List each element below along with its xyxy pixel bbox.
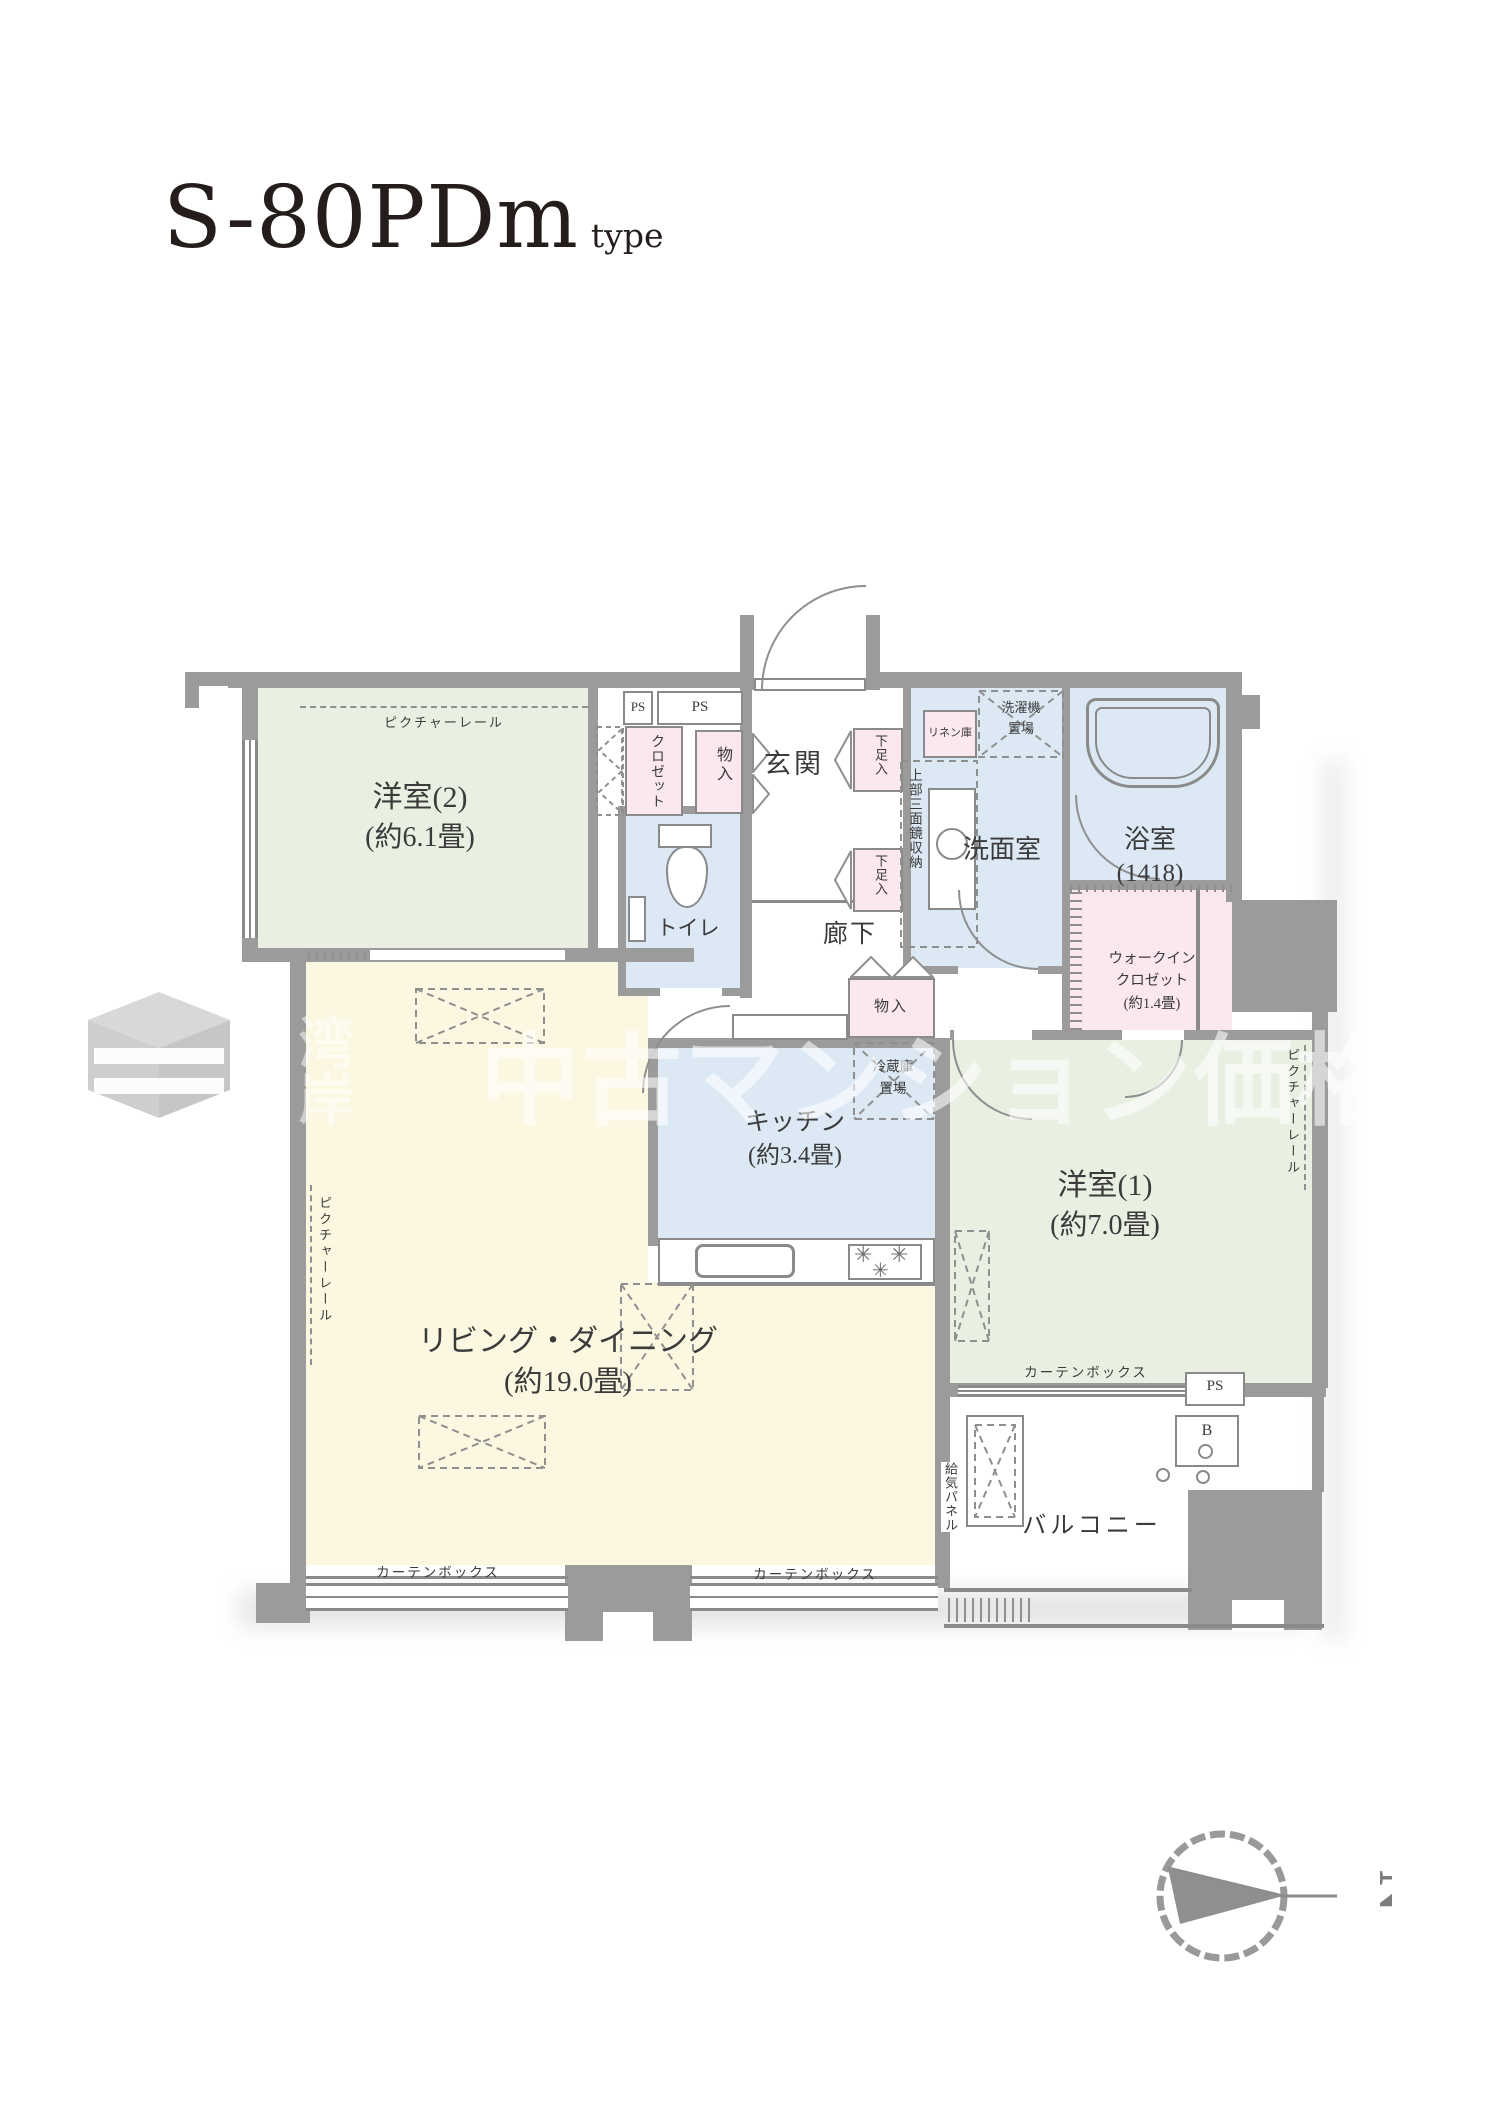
label-text: 洗濯機 <box>1001 698 1040 719</box>
storage-door-icon <box>850 956 892 978</box>
compass-north-label: N <box>1367 1870 1392 1912</box>
label-text: カーテンボックス <box>753 1566 877 1584</box>
picture-rail-line <box>300 706 588 708</box>
room-label: ウォークイン クロゼット (約1.4畳) <box>1109 948 1196 1015</box>
room-name: リビング・ダイニング <box>418 1322 718 1363</box>
toilet-tank-icon <box>658 824 712 848</box>
plan-type-suffix: type <box>591 216 664 255</box>
label-text: 下足入 <box>873 734 888 776</box>
pillar <box>256 1583 310 1623</box>
label-text: 物入 <box>874 997 908 1017</box>
ps-label: PS <box>631 698 645 716</box>
room-name: キッチン <box>745 1106 845 1140</box>
room-label: バルコニー <box>1022 1510 1162 1542</box>
drain-icon <box>1196 1470 1210 1484</box>
room-name: 洗面室 <box>963 832 1041 867</box>
label-text: 冷蔵庫 <box>873 1056 914 1078</box>
hose-bib-label: B <box>1202 1420 1213 1442</box>
room-label: トイレ <box>657 914 720 942</box>
stove-burner-icon: ✳ <box>890 1242 908 1268</box>
ps-label: PS <box>692 697 709 717</box>
floor-plan-page: S-80PDm type <box>0 0 1500 2120</box>
room-label: 浴室 (1418) <box>1117 822 1184 891</box>
wall <box>1242 695 1260 729</box>
wall <box>242 688 258 742</box>
wic-divider <box>1196 888 1200 1030</box>
label-text: 下足入 <box>873 854 888 896</box>
ceiling-box <box>418 1415 546 1469</box>
ps-label: PS <box>1207 1376 1224 1396</box>
door-opening <box>1122 1030 1184 1040</box>
label-text: カーテンボックス <box>376 1564 500 1582</box>
page-title: S-80PDm type <box>163 168 663 268</box>
room-label: 洋室(1) (約7.0畳) <box>1050 1166 1160 1244</box>
room-label: 洗面室 <box>963 832 1041 867</box>
label-text: B <box>1202 1420 1213 1442</box>
label-text: ピクチャーレール <box>384 714 504 732</box>
room-name: 洋室(2) <box>365 778 475 819</box>
wall <box>1312 1388 1324 1492</box>
pillar-notch <box>603 1612 653 1642</box>
room-name: 洋室(1) <box>1050 1166 1160 1207</box>
washer-space-label: 洗濯機 置場 <box>1001 698 1040 740</box>
room-size: (約7.0畳) <box>1050 1207 1160 1245</box>
wall <box>290 948 306 1588</box>
window <box>958 1385 1186 1397</box>
room-label: 洋室(2) (約6.1畳) <box>365 778 475 856</box>
window <box>242 740 258 940</box>
picture-rail-line <box>1304 1045 1306 1190</box>
room-name: 玄関 <box>764 746 824 782</box>
wall <box>1062 888 1070 1038</box>
curtain-box-label: カーテンボックス <box>753 1566 877 1584</box>
fridge-space-label: 冷蔵庫 置場 <box>873 1056 914 1099</box>
room-label: キッチン (約3.4畳) <box>745 1106 845 1172</box>
picture-rail-label: ピクチャーレール <box>1283 1048 1302 1176</box>
balcony-rail <box>944 1624 1324 1628</box>
label-text: PS <box>692 697 709 717</box>
room-name: バルコニー <box>1022 1510 1162 1542</box>
picture-rail-line <box>310 1185 312 1365</box>
kitchen-sink-icon <box>695 1244 795 1278</box>
ceiling-box <box>415 988 545 1044</box>
stove-icon: ✳ ✳ ✳ <box>848 1244 922 1280</box>
room-size: (約1.4畳) <box>1109 993 1196 1015</box>
door-opening <box>660 988 722 996</box>
label-text: PS <box>1207 1376 1224 1396</box>
shoe-box-label: 下足入 <box>871 734 890 776</box>
watermark-logo-icon <box>86 990 232 1120</box>
label-text: カーテンボックス <box>1024 1364 1148 1382</box>
pillar <box>1232 900 1337 1012</box>
bathtub-icon <box>1086 698 1220 788</box>
wall <box>228 672 752 688</box>
room-living-dining <box>306 962 648 1565</box>
door-arc <box>642 1005 730 1093</box>
wall <box>1226 672 1242 902</box>
drop-shadow <box>1326 760 1342 1640</box>
closet-label: クロゼット <box>646 734 666 809</box>
storage-label: 物入 <box>710 746 734 784</box>
wall <box>866 672 1238 688</box>
stove-burner-icon: ✳ <box>854 1242 872 1268</box>
bathtub-inner <box>1095 707 1211 779</box>
drain-icon <box>1198 1444 1213 1459</box>
picture-rail-label: ピクチャーレール <box>384 714 504 732</box>
room-size: (約3.4畳) <box>745 1140 845 1172</box>
shoe-box-label: 下足入 <box>871 854 890 896</box>
label-text: 物入 <box>714 746 731 784</box>
label-text: ピクチャーレール <box>1285 1048 1300 1176</box>
room-label: リビング・ダイニング (約19.0畳) <box>418 1322 718 1402</box>
label-text: リネン庫 <box>928 726 972 741</box>
wic-folding-door <box>1070 892 1082 1030</box>
storage-door-icon <box>892 956 934 978</box>
entrance-door-arc <box>761 585 866 690</box>
storage-label: 物入 <box>874 997 908 1017</box>
toilet-remote-icon <box>628 896 646 942</box>
label-text: ピクチャーレール <box>317 1196 332 1324</box>
room-size: (1418) <box>1117 857 1184 891</box>
room-label: 廊下 <box>823 918 877 952</box>
room-name: 浴室 <box>1117 822 1184 857</box>
wall <box>185 672 199 708</box>
room-name: ウォークイン <box>1109 948 1196 970</box>
sliding-door-opening <box>370 950 565 960</box>
wall <box>618 806 626 996</box>
door-opening <box>954 1030 1032 1040</box>
label-text: PS <box>631 698 645 716</box>
linen-label: リネン庫 <box>928 726 972 741</box>
room-name: クロゼット <box>1109 970 1196 992</box>
drain-icon <box>1156 1468 1170 1482</box>
ceiling-box <box>954 1230 990 1342</box>
closet-folding-door-icon <box>596 726 624 816</box>
label-text: 給気パネル <box>943 1462 958 1532</box>
room-label: 玄関 <box>764 746 824 782</box>
door-leaf <box>732 1014 848 1040</box>
window <box>690 1583 938 1611</box>
room-size: (約19.0畳) <box>418 1363 718 1402</box>
plan-type-code: S-80PDm <box>163 168 579 268</box>
wall-hatch <box>300 951 368 959</box>
compass-icon: N <box>1152 1826 1392 1976</box>
balcony-rail <box>944 1588 1192 1592</box>
label-text: 置場 <box>1001 719 1040 740</box>
entrance-jamb <box>740 615 754 690</box>
label-text: 置場 <box>873 1078 914 1100</box>
shoe-box-door-icon <box>834 730 852 790</box>
window <box>306 1583 568 1611</box>
picture-rail-label: ピクチャーレール <box>315 1196 334 1324</box>
stove-burner-icon: ✳ <box>872 1258 889 1283</box>
mirror-cabinet-label: 上部三面鏡収納 <box>904 768 924 870</box>
balcony-vent-grille <box>948 1598 1036 1622</box>
shoe-box-door-icon <box>834 850 852 910</box>
wall <box>1312 1012 1328 1388</box>
curtain-box-label: カーテンボックス <box>376 1564 500 1582</box>
room-name: 廊下 <box>823 918 877 952</box>
label-text: クロゼット <box>649 734 664 809</box>
equipment-box <box>974 1424 1016 1518</box>
curtain-box-label: カーテンボックス <box>1024 1364 1148 1382</box>
room-size: (約6.1畳) <box>365 819 475 857</box>
air-panel-label: 給気パネル <box>941 1462 960 1532</box>
room-name: トイレ <box>657 914 720 942</box>
label-text: 上部三面鏡収納 <box>907 768 922 870</box>
